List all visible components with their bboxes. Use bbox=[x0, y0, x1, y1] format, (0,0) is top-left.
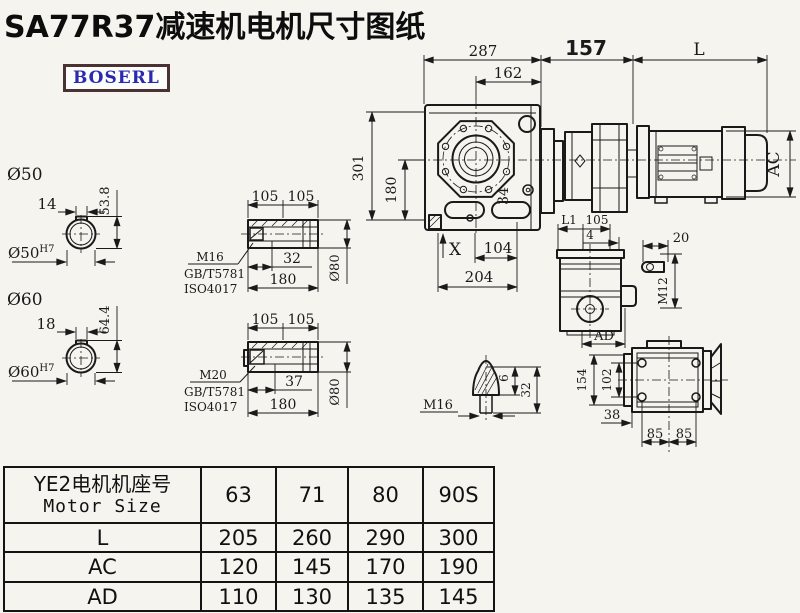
table-row-AC: AC 120 145 170 190 bbox=[4, 552, 494, 582]
dim-105a-1: 105 bbox=[252, 189, 279, 205]
header-motor-size-en: Motor Size bbox=[5, 496, 200, 518]
gearbox-top-view: 154 102 38 85 85 bbox=[575, 336, 728, 452]
header-size-80: 80 bbox=[348, 467, 423, 523]
dim-104: 104 bbox=[484, 239, 513, 257]
hollow-shaft-detail-2: 105 105 37 180 Ø80 M20 GB/T5781 ISO4017 bbox=[184, 312, 351, 417]
dim-37: 37 bbox=[285, 374, 303, 390]
table-row-AD: AD 110 130 135 145 bbox=[4, 582, 494, 611]
cell-AD-63: 110 bbox=[201, 582, 276, 611]
dim-204: 204 bbox=[465, 268, 494, 286]
drawing-sheet: SA77R37减速机电机尺寸图纸 BOSERL Ø50 14 53.8 Ø50H… bbox=[0, 0, 800, 613]
motor-side-view: L1 105 4 AD bbox=[557, 213, 636, 348]
dim-18: 18 bbox=[36, 315, 55, 333]
cell-L-90s: 300 bbox=[423, 523, 494, 552]
header-motor-size: YE2电机机座号 Motor Size bbox=[4, 467, 201, 523]
dim-L: L bbox=[693, 40, 704, 60]
dim-105a-2: 105 bbox=[252, 312, 279, 328]
dim-AD: AD bbox=[593, 329, 614, 344]
key-detail: 20 M12 bbox=[642, 231, 689, 308]
label-m20: M20 bbox=[199, 368, 227, 382]
dim-32-1: 32 bbox=[283, 251, 301, 267]
dim-6: 6 bbox=[497, 374, 511, 382]
dim-34: 34 bbox=[496, 187, 512, 205]
dim-85a: 85 bbox=[647, 427, 664, 442]
header-size-63: 63 bbox=[201, 467, 276, 523]
dim-53.8: 53.8 bbox=[98, 187, 113, 216]
left-dimensions: 301 180 bbox=[351, 112, 425, 220]
hollow-shaft-detail-1: 105 105 32 180 Ø80 M16 GB/T5781 ISO4017 bbox=[184, 189, 351, 296]
label-iso-1: ISO4017 bbox=[184, 282, 237, 296]
ac-dimension: AC bbox=[726, 131, 796, 197]
dim-180-1: 180 bbox=[270, 272, 297, 288]
dim-14: 14 bbox=[37, 195, 56, 213]
cell-AC-90s: 190 bbox=[423, 552, 494, 582]
header-motor-size-cn: YE2电机机座号 bbox=[5, 472, 200, 496]
cell-AD-71: 130 bbox=[276, 582, 348, 611]
row-label-AD: AD bbox=[4, 582, 201, 611]
dim-180-2: 180 bbox=[270, 397, 297, 413]
table-header-row: YE2电机机座号 Motor Size 63 71 80 90S bbox=[4, 467, 494, 523]
top-dimensions: 287 157 L 162 bbox=[424, 36, 767, 133]
label-d60h7: Ø60H7 bbox=[8, 363, 54, 381]
label-m12: M12 bbox=[656, 277, 670, 305]
technical-drawing: Ø50 14 53.8 Ø50H7 Ø60 bbox=[0, 0, 800, 462]
dim-64.4: 64.4 bbox=[98, 306, 113, 335]
motor-size-table: YE2电机机座号 Motor Size 63 71 80 90S L 205 2… bbox=[3, 466, 495, 612]
row-label-AC: AC bbox=[4, 552, 201, 582]
row-label-L: L bbox=[4, 523, 201, 552]
dim-180: 180 bbox=[384, 177, 400, 204]
dim-105b-1: 105 bbox=[288, 189, 315, 205]
cell-L-63: 205 bbox=[201, 523, 276, 552]
cell-L-71: 260 bbox=[276, 523, 348, 552]
cell-AD-80: 135 bbox=[348, 582, 423, 611]
stud-detail: M16 6 32 bbox=[420, 355, 541, 420]
dim-AC: AC bbox=[764, 151, 784, 177]
label-gb-2: GB/T5781 bbox=[184, 385, 245, 399]
cell-AC-71: 145 bbox=[276, 552, 348, 582]
cell-AD-90s: 145 bbox=[423, 582, 494, 611]
dim-85b: 85 bbox=[676, 427, 693, 442]
dim-4: 4 bbox=[586, 228, 594, 242]
dim-L1: L1 bbox=[561, 213, 577, 227]
dim-105b-2: 105 bbox=[288, 312, 315, 328]
dim-162: 162 bbox=[494, 64, 523, 82]
dim-38: 38 bbox=[604, 408, 621, 423]
dim-301: 301 bbox=[351, 155, 367, 182]
dim-157: 157 bbox=[565, 36, 607, 60]
dim-287: 287 bbox=[469, 42, 498, 60]
label-gb-1: GB/T5781 bbox=[184, 267, 245, 281]
bottom-dimensions: X 104 204 bbox=[438, 222, 517, 292]
header-size-90s: 90S bbox=[423, 467, 494, 523]
label-iso-2: ISO4017 bbox=[184, 400, 237, 414]
label-stud-m16: M16 bbox=[423, 398, 453, 413]
coupling-and-motor bbox=[541, 124, 767, 213]
label-d60: Ø60 bbox=[7, 290, 43, 310]
table-row-L: L 205 260 290 300 bbox=[4, 523, 494, 552]
dim-X: X bbox=[449, 240, 462, 260]
label-m16: M16 bbox=[196, 250, 224, 264]
dim-102: 102 bbox=[600, 369, 614, 392]
cell-AC-63: 120 bbox=[201, 552, 276, 582]
dim-105-side: 105 bbox=[586, 213, 609, 227]
cell-AC-80: 170 bbox=[348, 552, 423, 582]
dim-d80-2: Ø80 bbox=[328, 378, 343, 405]
cell-L-80: 290 bbox=[348, 523, 423, 552]
header-size-71: 71 bbox=[276, 467, 348, 523]
dim-154: 154 bbox=[575, 368, 589, 391]
dim-32-stud: 32 bbox=[519, 382, 533, 397]
label-d50: Ø50 bbox=[7, 165, 43, 185]
dim-20: 20 bbox=[673, 231, 690, 246]
shaft-section-60: Ø60 18 64.4 Ø60H7 bbox=[7, 290, 122, 385]
dim-d80-1: Ø80 bbox=[328, 254, 343, 281]
label-d50h7: Ø50H7 bbox=[8, 244, 54, 262]
shaft-section-50: Ø50 14 53.8 Ø50H7 bbox=[7, 165, 122, 266]
